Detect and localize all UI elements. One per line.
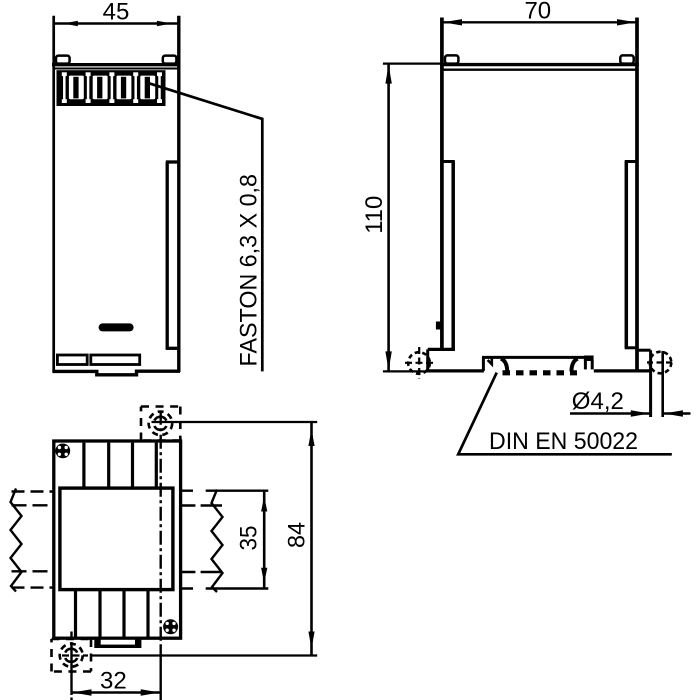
svg-text:84: 84	[283, 522, 310, 548]
svg-text:110: 110	[361, 196, 388, 234]
svg-text:FASTON 6,3 X 0,8: FASTON 6,3 X 0,8	[236, 174, 263, 367]
svg-text:DIN EN 50022: DIN EN 50022	[489, 428, 638, 455]
svg-text:Ø4,2: Ø4,2	[572, 388, 624, 415]
svg-text:70: 70	[524, 0, 551, 24]
svg-text:35: 35	[236, 526, 263, 551]
svg-text:32: 32	[100, 668, 127, 695]
svg-text:45: 45	[103, 0, 130, 26]
